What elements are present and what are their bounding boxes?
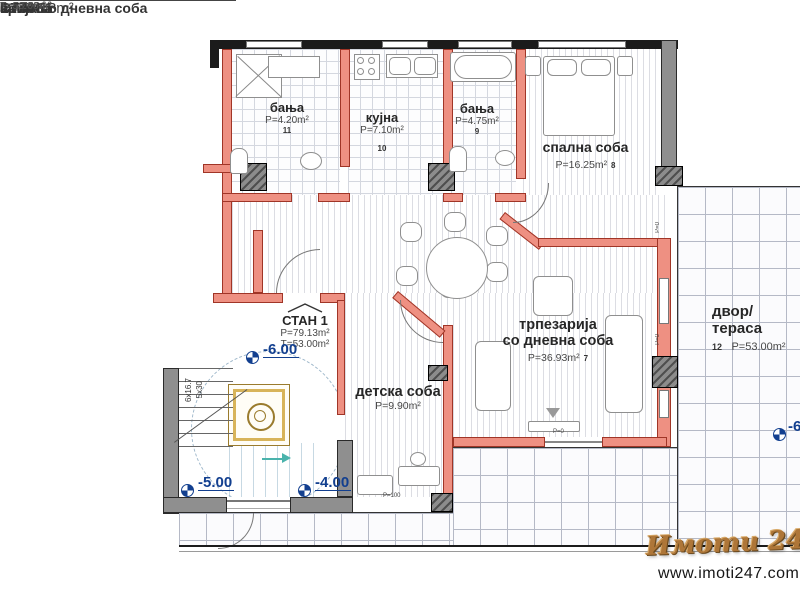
wall-red	[443, 193, 463, 202]
parapet-label: P=0	[655, 334, 661, 345]
column	[431, 493, 453, 512]
wall-red	[602, 437, 667, 447]
column	[655, 166, 683, 186]
benchmark-icon	[181, 484, 194, 497]
wall-red	[222, 193, 292, 202]
kids-bed	[357, 475, 393, 495]
chair	[396, 266, 418, 286]
sink-basin	[414, 57, 436, 75]
parapet-label: P=0	[655, 222, 661, 233]
terrace-area-bottom	[453, 447, 677, 546]
burner	[357, 68, 364, 75]
nightstand	[525, 56, 541, 76]
room-label-bath1: бања P=4.20m² 11	[242, 100, 332, 135]
unit-pointer-arrow-icon	[286, 302, 324, 313]
room-number: 8	[611, 161, 615, 170]
room-number: 9	[437, 127, 517, 136]
room-label-bedroom: спална соба P=16.25m² 8	[528, 139, 643, 171]
room-name-line2: со дневна соба	[498, 333, 618, 349]
terrace-area-right	[677, 186, 800, 546]
armchair	[533, 276, 573, 316]
room-number: 12	[712, 342, 722, 352]
washbasin	[300, 152, 322, 170]
desk	[398, 466, 440, 486]
column	[428, 365, 448, 381]
room-label-bath2: бања P=4.75m² 9	[437, 101, 517, 136]
wall-bedroom-right	[661, 40, 677, 170]
room-label-kitchen: кујна P=7.10m² 10	[337, 110, 427, 153]
room-number: 11	[242, 126, 332, 135]
terrace-door-threshold	[545, 441, 602, 443]
elevator-shaft	[228, 384, 290, 446]
window	[659, 278, 669, 324]
chair	[486, 262, 508, 282]
legend-terrace-value: T=53.00m²	[0, 0, 51, 12]
room-name: спална соба	[528, 139, 643, 155]
window	[382, 41, 428, 48]
wall-red	[253, 230, 263, 293]
room-area: P=53.00m²	[731, 341, 785, 353]
room-name: бања	[242, 100, 332, 115]
room-area: P=36.93m²	[528, 352, 580, 364]
direction-arrow-line	[262, 458, 282, 460]
unit-name: СТАН 1	[266, 313, 344, 328]
stairs-run-label: 6x16.7	[184, 378, 193, 402]
room-area: P=7.10m²	[337, 125, 427, 136]
benchmark-icon	[773, 428, 786, 441]
burner	[357, 57, 364, 64]
dining-table	[426, 237, 488, 299]
room-name-line1: трпезарија	[498, 317, 618, 333]
window	[538, 41, 626, 48]
room-label-terrace: двор/тераса 12 P=53.00m²	[712, 303, 800, 355]
burner	[368, 57, 375, 64]
chair	[444, 212, 466, 232]
elevation-value: -5.00	[198, 474, 232, 491]
benchmark-icon	[246, 351, 259, 364]
pillow	[547, 59, 577, 76]
elevation-value: -4.00	[315, 474, 349, 491]
door-width-label: P=100	[383, 493, 401, 499]
room-number: 10	[337, 144, 427, 153]
room-label-living: трпезарија со дневна соба P=36.93m² 7	[498, 317, 618, 365]
desk-chair	[410, 452, 426, 466]
washbasin	[495, 150, 515, 166]
wall-red	[318, 193, 350, 202]
room-area: P=4.20m²	[242, 115, 332, 126]
pillow	[581, 59, 611, 76]
burner	[368, 68, 375, 75]
elevation-value: -6.00	[263, 341, 297, 358]
chair	[400, 222, 422, 242]
bathtub-inner	[454, 55, 512, 79]
toilet	[449, 146, 467, 172]
stairs-rise-label: 5x30	[195, 381, 204, 398]
room-number: 7	[584, 354, 588, 363]
door-threshold	[227, 500, 290, 502]
window	[246, 41, 302, 48]
tv-marker	[546, 408, 560, 418]
wall-red	[453, 437, 545, 447]
room-area: P=4.75m²	[437, 116, 517, 127]
room-name: двор/тераса	[712, 303, 800, 337]
room-name: бања	[437, 101, 517, 116]
elevation-underline	[263, 357, 299, 358]
benchmark-icon	[298, 484, 311, 497]
window	[458, 41, 512, 48]
elevation-underline	[315, 490, 351, 491]
room-name: детска соба	[350, 384, 446, 400]
wall-red	[538, 238, 668, 247]
toilet	[230, 148, 248, 174]
room-label-kids: детска соба P=9.90m²	[350, 384, 446, 412]
wall-lobby-bottom-right	[290, 497, 353, 513]
wall-top-left-stub	[210, 40, 219, 68]
door-threshold	[227, 508, 290, 509]
window	[659, 390, 669, 418]
room-area: P=9.90m²	[350, 400, 446, 412]
chair	[486, 226, 508, 246]
elevation-value: -6	[788, 418, 800, 435]
floor-plan-page: арија со дневна соба P=36.93m² на соба P…	[0, 0, 800, 600]
nightstand	[617, 56, 633, 76]
direction-arrow-icon	[282, 453, 291, 463]
parapet-label: P=0	[553, 429, 564, 435]
unit-area: P=79.13m²	[266, 328, 344, 339]
website-url: www.imoti247.com	[658, 565, 799, 583]
sink-basin	[389, 57, 411, 75]
room-area: P=16.25m²	[556, 159, 608, 171]
wall-lobby-bottom-left	[163, 497, 227, 513]
column	[652, 356, 678, 388]
elevation-underline	[198, 490, 234, 491]
room-name: кујна	[337, 110, 427, 125]
washing-machine	[268, 56, 320, 78]
elevator-circle-inner	[254, 410, 266, 422]
